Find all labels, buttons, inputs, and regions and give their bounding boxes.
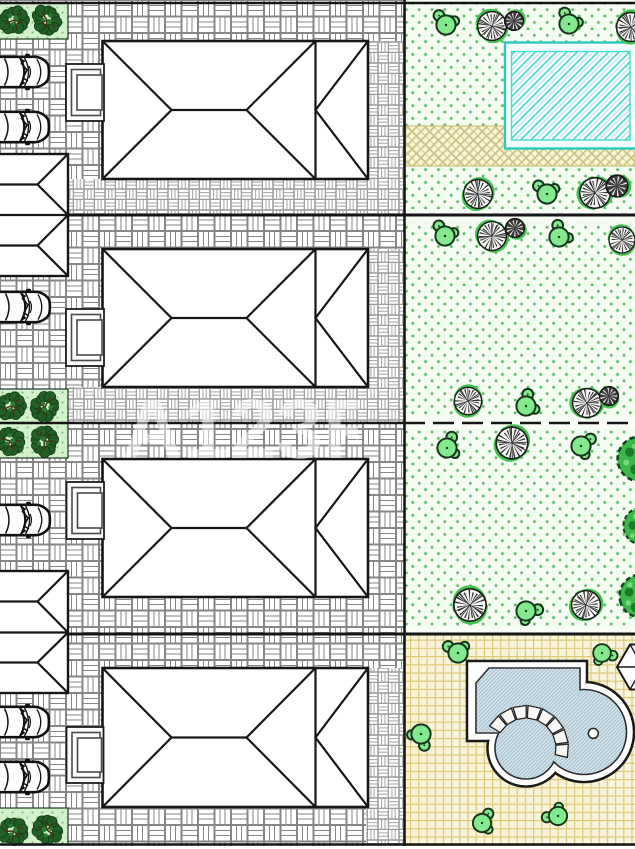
svg-text:A123R: A123R — [122, 382, 383, 476]
